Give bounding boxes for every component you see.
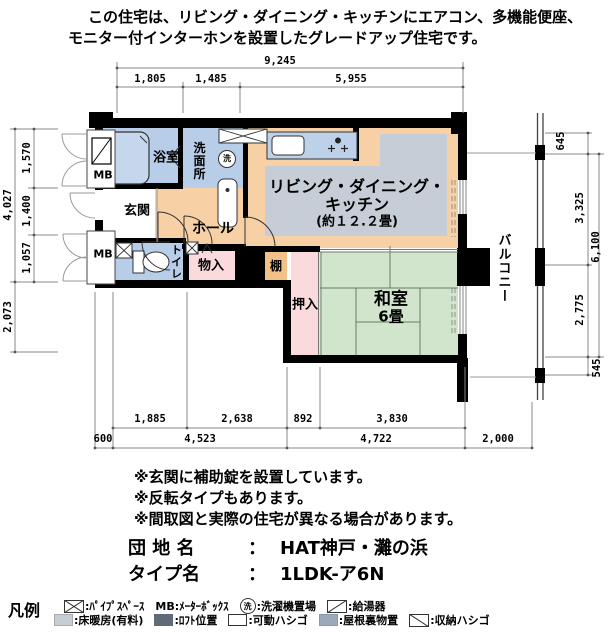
pipe-space-small-icon: [186, 242, 198, 254]
legend-storage-ladder: :収納ハシゴ: [409, 612, 489, 628]
dim-left-1: 1,570: [22, 142, 33, 174]
dim-right-total: 6,100: [591, 231, 602, 263]
room-label-shelf: 棚: [270, 260, 282, 272]
room-label-balcony: バルコニー: [497, 233, 510, 303]
room-label-closet: 押入: [292, 299, 318, 312]
storage-ladder-icon: [219, 129, 267, 143]
estate-name-label: 団 地 名: [128, 534, 195, 560]
mb-top-doors: [62, 134, 87, 186]
room-label-storage: 物入: [198, 260, 224, 273]
mb-label-top: MB: [93, 170, 112, 181]
room-label-washitsu: 和室: [374, 292, 408, 309]
dim-left-outer-1: 4,027: [3, 189, 14, 221]
water-heater-icon: [327, 600, 347, 613]
pipe-space-icon: [64, 600, 84, 613]
dim-top-total: 9,245: [264, 56, 296, 67]
dim-left-outer-2: 2,073: [3, 301, 14, 333]
legend-loft: :ﾛﾌﾄ位置: [154, 612, 217, 628]
dim-bottom-lower-1: 600: [94, 434, 113, 445]
washing-machine-symbol: 洗: [223, 155, 231, 163]
dim-right-1: 645: [556, 132, 567, 151]
storage-ladder-icon: [409, 614, 429, 627]
movable-ladder-icon: [228, 614, 247, 626]
dim-right-4: 545: [592, 359, 603, 378]
washitsu-size: 6畳: [378, 310, 403, 325]
dim-bottom-lower-2: 4,523: [184, 434, 216, 445]
type-name-sep: ：: [248, 560, 266, 586]
dim-left-2: 1,400: [22, 195, 33, 227]
water-heater-icon: [92, 138, 111, 164]
entrance-door: [70, 190, 103, 220]
legend-movable-ladder: :可動ハシゴ: [228, 612, 307, 628]
dim-bottom-upper-4: 3,830: [376, 414, 408, 425]
attic-storage-swatch: [319, 614, 338, 626]
type-name-value: 1LDK-ア6N: [280, 560, 384, 586]
kitchen-sink-icon: [272, 136, 304, 155]
pipe-space-icon: [116, 243, 132, 258]
floor-heating-swatch: [54, 614, 73, 626]
dim-bottom-upper-3: 892: [294, 414, 313, 425]
kitchen-counter: [267, 132, 357, 159]
ldk-label-line1: リビング・ダイニング・: [269, 179, 445, 195]
type-name-label: タイプ名: [128, 560, 200, 586]
mb-label-bottom: MB: [93, 249, 112, 260]
note-2: ※反転タイプもあります。: [134, 487, 312, 508]
dim-top-2: 1,485: [195, 74, 227, 85]
room-label-hall: ホール: [192, 222, 234, 236]
dim-left-3: 1,057: [22, 242, 33, 274]
legend-row-2: :床暖房(有料) :ﾛﾌﾄ位置 :可動ハシゴ :屋根裏物置 :収納ハシゴ: [54, 612, 490, 628]
estate-name-value: HAT神戸・灘の浜: [280, 534, 428, 560]
dim-right-2: 3,325: [575, 192, 586, 224]
header-line2: モニター付インターホンを設置したグレードアップ住宅です。: [68, 27, 487, 48]
note-1: ※玄関に補助錠を設置しています。: [134, 466, 372, 487]
room-label-toilet: トイレ: [171, 244, 182, 280]
room-label-bath: 浴室: [153, 152, 179, 165]
legend-title: 凡例: [8, 597, 40, 621]
loft-swatch: [154, 614, 173, 626]
legend-attic-storage: :屋根裏物置: [319, 612, 398, 628]
dim-bottom-lower-4: 2,000: [482, 434, 514, 445]
ldk-label-size: (約１２.２畳): [316, 216, 398, 229]
note-3: ※間取図と実際の住宅が異なる場合があります。: [134, 508, 462, 529]
mb-bottom-doors: [63, 234, 87, 281]
floorplan-page: この住宅は、リビング・ダイニング・キッチンにエアコン、多機能便座、 モニター付イ…: [0, 0, 609, 632]
room-label-washroom: 洗面所: [193, 142, 205, 181]
header-line1: この住宅は、リビング・ダイニング・キッチンにエアコン、多機能便座、: [88, 6, 582, 27]
washbasin-icon: [218, 179, 237, 227]
dim-bottom-upper-1: 1,885: [134, 414, 166, 425]
dim-right-3: 2,775: [575, 294, 586, 326]
estate-name-sep: ：: [248, 534, 266, 560]
room-label-entrance: 玄関: [124, 205, 150, 218]
dim-bottom-upper-2: 2,638: [221, 414, 253, 425]
dim-top-3: 5,955: [335, 74, 367, 85]
dim-top-1: 1,805: [134, 74, 166, 85]
ldk-label-line2: キッチン: [325, 197, 389, 213]
dim-bottom-lower-3: 4,722: [360, 434, 392, 445]
legend-floor-heating: :床暖房(有料): [54, 612, 143, 628]
